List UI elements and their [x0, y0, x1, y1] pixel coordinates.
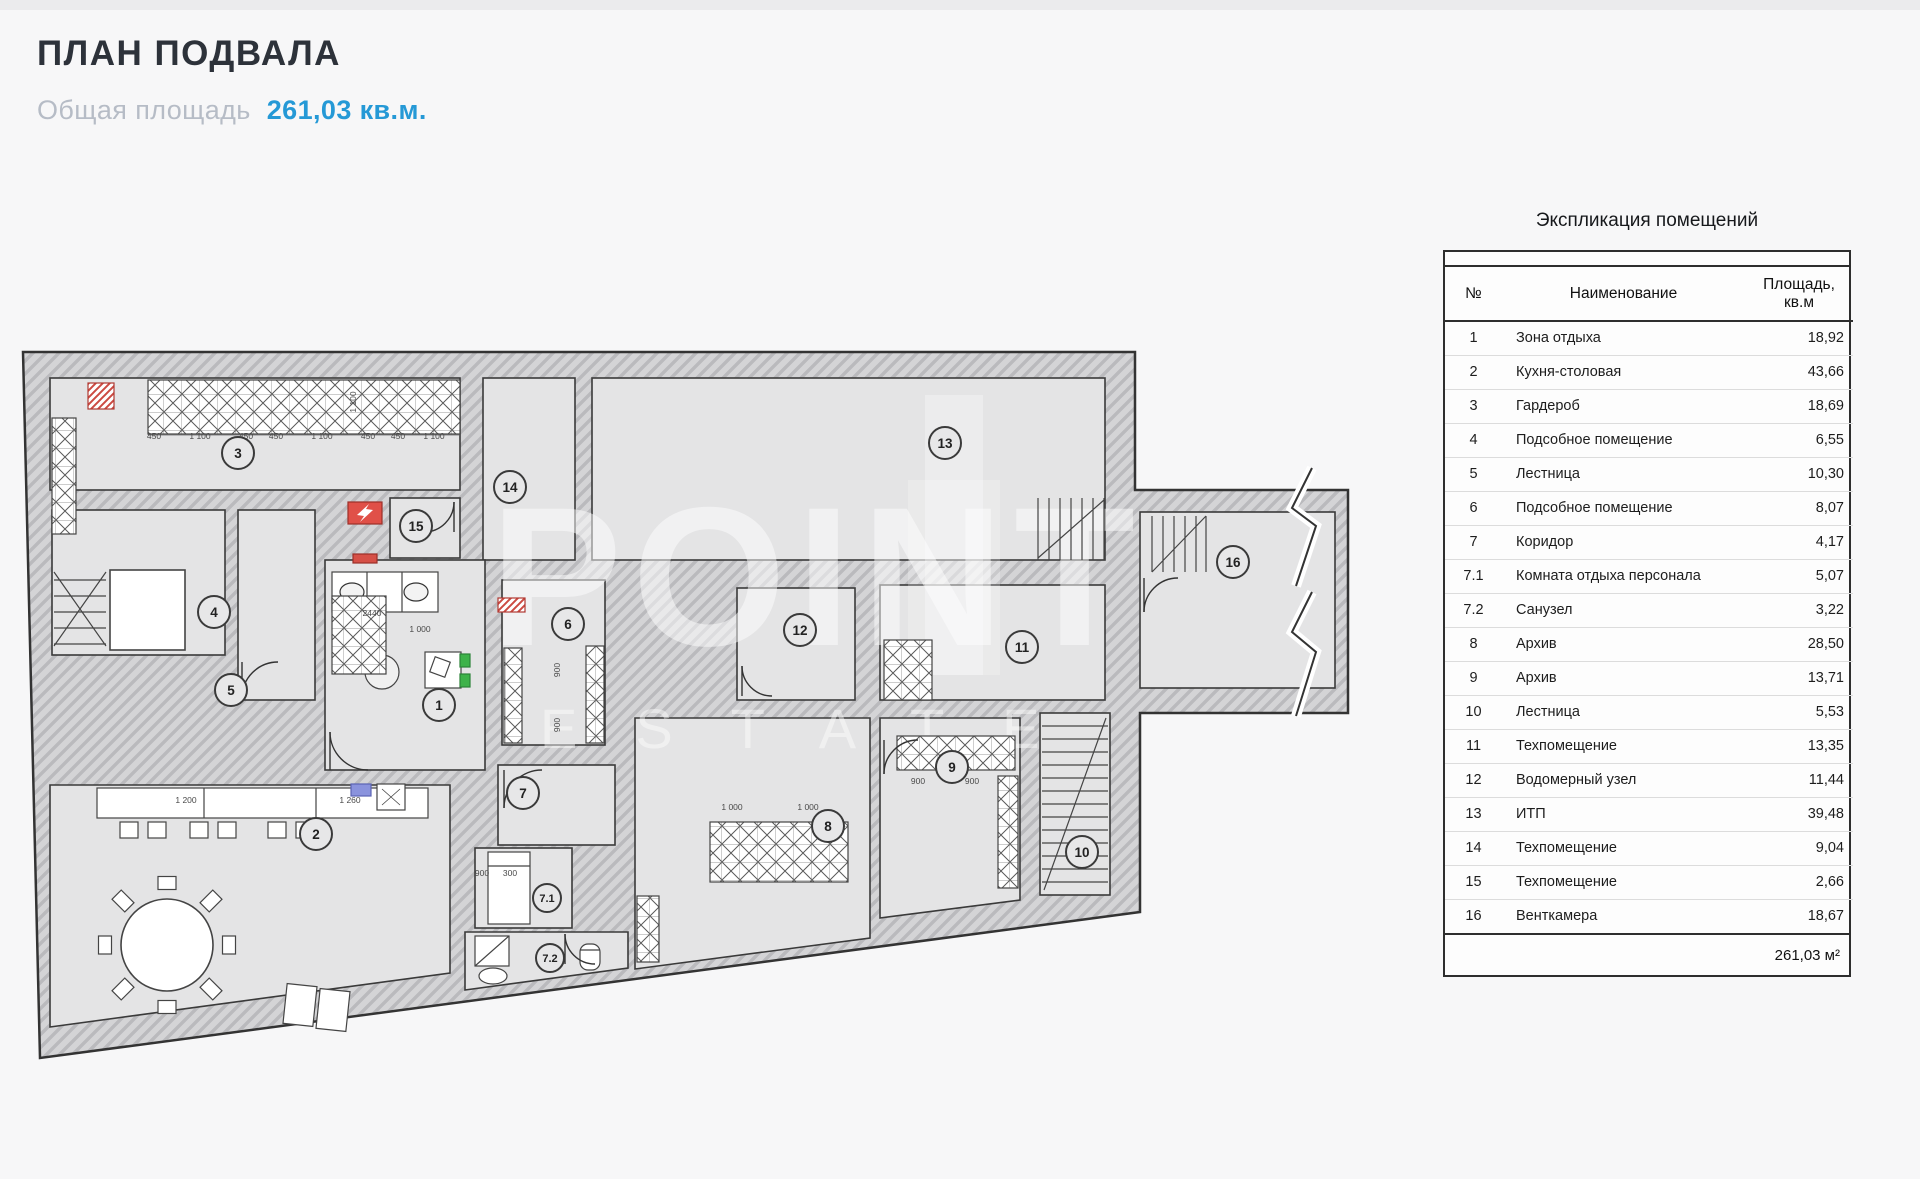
- room-13-itp: [592, 378, 1105, 560]
- cell-name: Лестница: [1502, 457, 1745, 491]
- dimension-label: 450: [147, 431, 161, 441]
- cell-name: Комната отдыха персонала: [1502, 559, 1745, 593]
- room-number: 6: [564, 617, 572, 632]
- cell-name: Венткамера: [1502, 899, 1745, 933]
- dimension-label: 900: [965, 776, 979, 786]
- table-row: 15Техпомещение2,66: [1445, 865, 1853, 899]
- cell-name: Гардероб: [1502, 389, 1745, 423]
- total-area-value: 261,03 кв.м.: [267, 95, 427, 125]
- legend-header-row: № Наименование Площадь, кв.м: [1445, 267, 1853, 321]
- table-row: 7.1Комната отдыха персонала5,07: [1445, 559, 1853, 593]
- table-row: 3Гардероб18,69: [1445, 389, 1853, 423]
- table-row: 6Подсобное помещение8,07: [1445, 491, 1853, 525]
- cell-name: ИТП: [1502, 797, 1745, 831]
- dimension-label: 1 260: [339, 795, 361, 805]
- room-number: 10: [1074, 845, 1089, 860]
- dimension-label: 1 100: [311, 431, 333, 441]
- cell-area: 3,22: [1745, 593, 1853, 627]
- cell-name: Техпомещение: [1502, 729, 1745, 763]
- table-row: 4Подсобное помещение6,55: [1445, 423, 1853, 457]
- sink-icon: [404, 583, 428, 601]
- cell-area: 9,04: [1745, 831, 1853, 865]
- cell-area: 39,48: [1745, 797, 1853, 831]
- dimension-label: 450: [391, 431, 405, 441]
- cell-area: 43,66: [1745, 355, 1853, 389]
- dimension-label: 1 100: [189, 431, 211, 441]
- top-strip: [0, 0, 1920, 10]
- cell-area: 28,50: [1745, 627, 1853, 661]
- cell-num: 1: [1445, 321, 1502, 355]
- table-row: 8Архив28,50: [1445, 627, 1853, 661]
- table-row: 11Техпомещение13,35: [1445, 729, 1853, 763]
- dimension-label: 450: [361, 431, 375, 441]
- cell-area: 13,71: [1745, 661, 1853, 695]
- cell-num: 7.2: [1445, 593, 1502, 627]
- table-row: 7.2Санузел3,22: [1445, 593, 1853, 627]
- room-number: 15: [408, 519, 424, 534]
- cell-name: Подсобное помещение: [1502, 491, 1745, 525]
- legend-total: 261,03 м²: [1445, 933, 1849, 975]
- dimension-label: 450: [269, 431, 283, 441]
- red-bar: [353, 554, 377, 563]
- cell-name: Подсобное помещение: [1502, 423, 1745, 457]
- cell-num: 10: [1445, 695, 1502, 729]
- dimension-label: 300: [503, 868, 517, 878]
- cell-name: Водомерный узел: [1502, 763, 1745, 797]
- dimension-label: 1 000: [797, 802, 819, 812]
- cell-num: 6: [1445, 491, 1502, 525]
- cell-num: 16: [1445, 899, 1502, 933]
- room-number: 4: [210, 605, 218, 620]
- room-number: 2: [312, 827, 320, 842]
- red-hatch-square-1: [88, 383, 114, 409]
- col-header-area: Площадь, кв.м: [1745, 267, 1853, 321]
- cell-num: 14: [1445, 831, 1502, 865]
- table-row: 2Кухня-столовая43,66: [1445, 355, 1853, 389]
- floor-plan-svg: POINT ESTATE: [20, 340, 1370, 1080]
- total-area-line: Общая площадь261,03 кв.м.: [37, 95, 427, 126]
- dimension-label: 900: [552, 663, 562, 677]
- table-row: 5Лестница10,30: [1445, 457, 1853, 491]
- green-chair: [460, 654, 470, 667]
- table-row: 12Водомерный узел11,44: [1445, 763, 1853, 797]
- dimension-label: 1 200: [175, 795, 197, 805]
- cell-area: 5,07: [1745, 559, 1853, 593]
- cell-name: Кухня-столовая: [1502, 355, 1745, 389]
- room-number: 7: [519, 786, 527, 801]
- cell-num: 12: [1445, 763, 1502, 797]
- room-number: 7.2: [542, 953, 557, 965]
- room-number: 14: [502, 480, 518, 495]
- room-number: 3: [234, 446, 242, 461]
- total-area-label: Общая площадь: [37, 95, 251, 125]
- cell-num: 15: [1445, 865, 1502, 899]
- toilet-icon: [580, 944, 600, 970]
- table-row: 14Техпомещение9,04: [1445, 831, 1853, 865]
- room-number: 5: [227, 683, 235, 698]
- dimension-label: 2440: [363, 608, 382, 618]
- cell-num: 13: [1445, 797, 1502, 831]
- cell-area: 2,66: [1745, 865, 1853, 899]
- floor-plan: POINT ESTATE: [20, 340, 1370, 1080]
- cell-area: 10,30: [1745, 457, 1853, 491]
- dimension-label: 1 000: [721, 802, 743, 812]
- dimension-label: 900: [552, 718, 562, 732]
- room-14-tech: [483, 378, 575, 560]
- table-row: 7Коридор4,17: [1445, 525, 1853, 559]
- room-number: 11: [1015, 640, 1030, 655]
- dimension-label: 1 100: [348, 391, 358, 413]
- room-number: 1: [435, 698, 443, 713]
- cell-num: 7: [1445, 525, 1502, 559]
- table-row: 1Зона отдыха18,92: [1445, 321, 1853, 355]
- cell-area: 11,44: [1745, 763, 1853, 797]
- cell-num: 9: [1445, 661, 1502, 695]
- room-number: 16: [1225, 555, 1241, 570]
- cell-name: Техпомещение: [1502, 865, 1745, 899]
- cell-num: 8: [1445, 627, 1502, 661]
- cell-num: 11: [1445, 729, 1502, 763]
- cell-name: Архив: [1502, 661, 1745, 695]
- green-chair: [460, 674, 470, 687]
- table-row: 16Венткамера18,67: [1445, 899, 1853, 933]
- table-row: 13ИТП39,48: [1445, 797, 1853, 831]
- cell-num: 5: [1445, 457, 1502, 491]
- page-title: ПЛАН ПОДВАЛА: [37, 34, 341, 74]
- cell-area: 13,35: [1745, 729, 1853, 763]
- legend-title: Экспликация помещений: [1443, 210, 1851, 232]
- room-number: 12: [792, 623, 807, 638]
- cell-name: Лестница: [1502, 695, 1745, 729]
- room-5-stairs: [238, 510, 315, 700]
- cell-area: 8,07: [1745, 491, 1853, 525]
- col-header-name: Наименование: [1502, 267, 1745, 321]
- legend-top-strip: [1445, 252, 1849, 267]
- dimension-label: 1 100: [423, 431, 445, 441]
- cell-name: Санузел: [1502, 593, 1745, 627]
- cell-area: 18,69: [1745, 389, 1853, 423]
- cell-name: Зона отдыха: [1502, 321, 1745, 355]
- cell-area: 4,17: [1745, 525, 1853, 559]
- col-header-num: №: [1445, 267, 1502, 321]
- cell-name: Архив: [1502, 627, 1745, 661]
- dimension-label: 900: [475, 868, 489, 878]
- cell-name: Коридор: [1502, 525, 1745, 559]
- cell-name: Техпомещение: [1502, 831, 1745, 865]
- cell-num: 3: [1445, 389, 1502, 423]
- room-number: 13: [937, 436, 953, 451]
- table-row: 9Архив13,71: [1445, 661, 1853, 695]
- cell-area: 18,92: [1745, 321, 1853, 355]
- room-number: 8: [824, 819, 832, 834]
- cell-area: 18,67: [1745, 899, 1853, 933]
- cell-num: 2: [1445, 355, 1502, 389]
- cell-num: 4: [1445, 423, 1502, 457]
- table-row: 10Лестница5,53: [1445, 695, 1853, 729]
- cell-area: 5,53: [1745, 695, 1853, 729]
- room-number: 9: [948, 760, 956, 775]
- dimension-label: 1 000: [409, 624, 431, 634]
- cell-area: 6,55: [1745, 423, 1853, 457]
- red-hatch-square-2: [498, 598, 525, 612]
- room-number: 7.1: [539, 893, 554, 905]
- dimension-label: 900: [911, 776, 925, 786]
- legend-table: № Наименование Площадь, кв.м 1Зона отдых…: [1443, 250, 1851, 977]
- cell-num: 7.1: [1445, 559, 1502, 593]
